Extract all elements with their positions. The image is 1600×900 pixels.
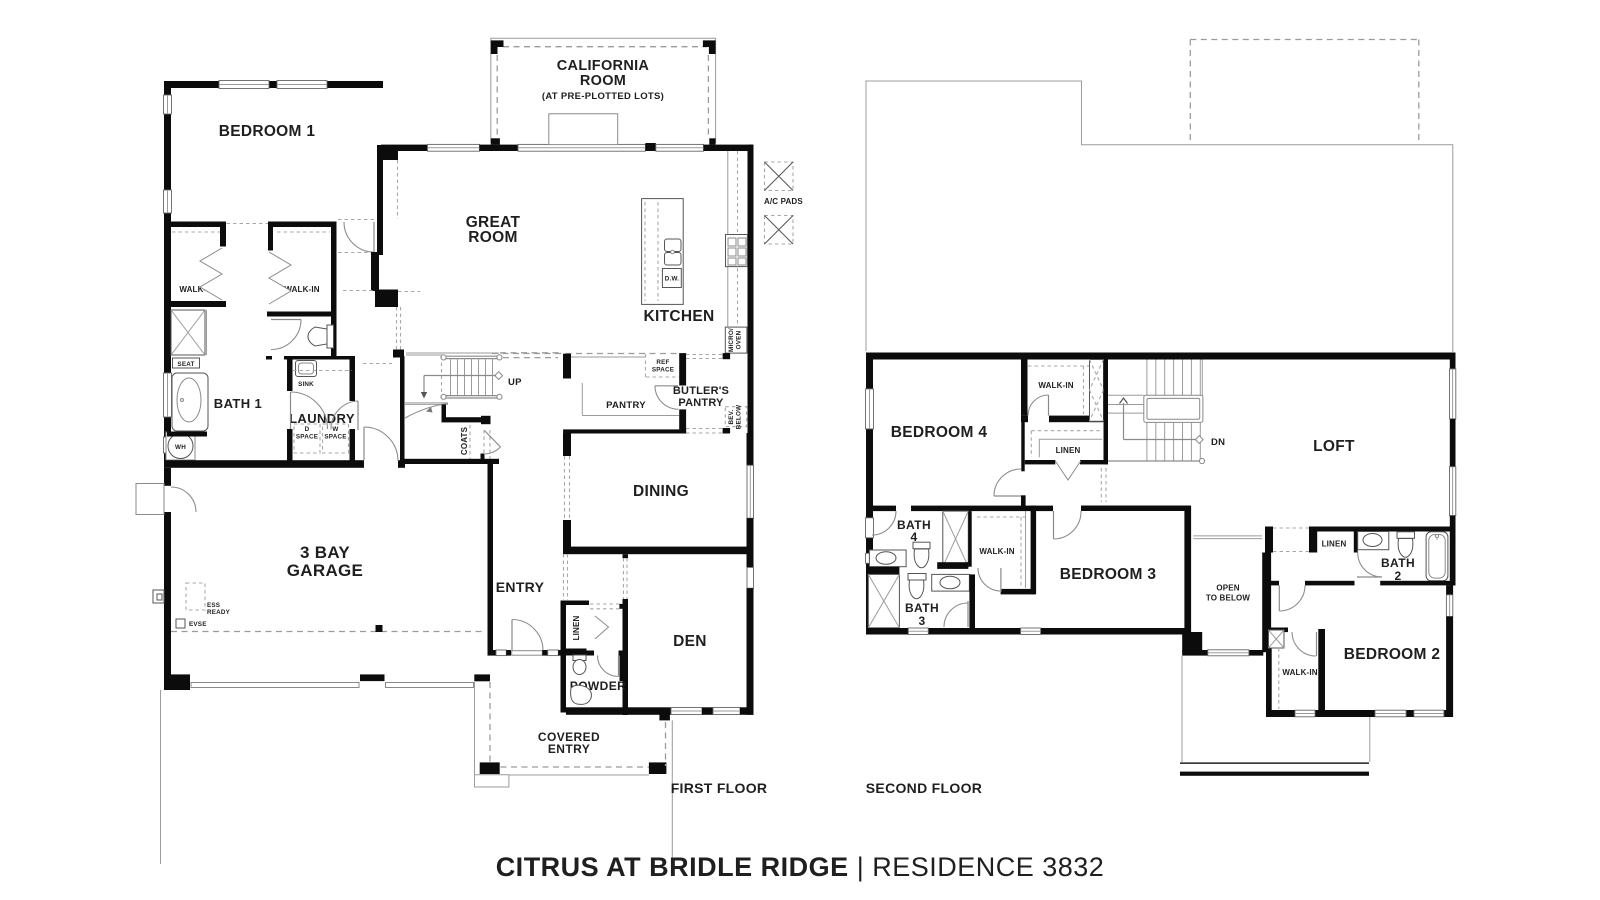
svg-text:REF: REF bbox=[656, 359, 669, 366]
svg-text:ENTRY: ENTRY bbox=[548, 742, 590, 756]
svg-text:BEDROOM 2: BEDROOM 2 bbox=[1344, 646, 1441, 663]
svg-text:PANTRY: PANTRY bbox=[678, 397, 724, 409]
svg-text:WALK-IN: WALK-IN bbox=[1038, 381, 1073, 390]
svg-text:EVSE: EVSE bbox=[189, 621, 207, 628]
svg-text:ESS: ESS bbox=[207, 602, 220, 609]
svg-text:LOFT: LOFT bbox=[1313, 438, 1355, 455]
svg-text:SEAT: SEAT bbox=[177, 361, 194, 368]
svg-text:BEDROOM 1: BEDROOM 1 bbox=[219, 123, 316, 140]
svg-text:CALIFORNIA: CALIFORNIA bbox=[557, 58, 650, 74]
svg-text:ENTRY: ENTRY bbox=[496, 579, 545, 595]
svg-text:DN: DN bbox=[1211, 437, 1225, 448]
svg-text:SECOND FLOOR: SECOND FLOOR bbox=[866, 780, 982, 796]
svg-text:UP: UP bbox=[508, 377, 522, 388]
svg-text:PANTRY: PANTRY bbox=[606, 400, 646, 411]
svg-text:WALK-IN: WALK-IN bbox=[284, 285, 319, 294]
svg-text:(AT PRE-PLOTTED LOTS): (AT PRE-PLOTTED LOTS) bbox=[542, 91, 664, 102]
svg-text:DINING: DINING bbox=[633, 483, 689, 500]
svg-text:LINEN: LINEN bbox=[1322, 540, 1347, 549]
svg-text:WALK-IN: WALK-IN bbox=[1282, 668, 1317, 677]
svg-text:LINEN: LINEN bbox=[1056, 446, 1081, 455]
svg-text:KITCHEN: KITCHEN bbox=[644, 308, 715, 325]
svg-text:BEDROOM 3: BEDROOM 3 bbox=[1060, 566, 1157, 583]
svg-text:COATS: COATS bbox=[460, 426, 469, 455]
svg-text:WALK-IN: WALK-IN bbox=[979, 547, 1014, 556]
svg-text:BATH: BATH bbox=[1381, 556, 1415, 570]
svg-text:WH: WH bbox=[175, 444, 186, 451]
svg-text:BEDROOM 4: BEDROOM 4 bbox=[891, 424, 988, 441]
svg-text:D.W.: D.W. bbox=[665, 276, 679, 283]
svg-text:LINEN: LINEN bbox=[572, 616, 581, 641]
svg-text:BEV.: BEV. bbox=[728, 409, 735, 424]
svg-text:OPEN: OPEN bbox=[1216, 584, 1239, 593]
svg-text:W: W bbox=[332, 426, 338, 433]
svg-text:SPACE: SPACE bbox=[324, 434, 346, 441]
svg-text:SPACE: SPACE bbox=[652, 367, 674, 374]
svg-text:BATH: BATH bbox=[905, 601, 939, 615]
svg-text:OVEN: OVEN bbox=[736, 330, 743, 349]
svg-text:CITRUS AT BRIDLE RIDGE | RESID: CITRUS AT BRIDLE RIDGE | RESIDENCE 3832 bbox=[496, 852, 1105, 882]
svg-text:FIRST FLOOR: FIRST FLOOR bbox=[671, 780, 768, 796]
svg-text:3: 3 bbox=[918, 614, 925, 628]
svg-text:BUTLER'S: BUTLER'S bbox=[673, 385, 729, 397]
svg-text:TO BELOW: TO BELOW bbox=[1206, 594, 1250, 603]
svg-text:BATH 1: BATH 1 bbox=[214, 396, 262, 411]
svg-text:ROOM: ROOM bbox=[580, 73, 626, 89]
svg-text:SINK: SINK bbox=[298, 381, 314, 388]
svg-text:A/C PADS: A/C PADS bbox=[764, 197, 803, 206]
svg-text:BELOW: BELOW bbox=[736, 405, 743, 429]
svg-text:MICRO/: MICRO/ bbox=[728, 328, 735, 352]
svg-text:GARAGE: GARAGE bbox=[287, 561, 363, 580]
svg-text:SPACE: SPACE bbox=[296, 434, 318, 441]
svg-text:DEN: DEN bbox=[673, 633, 707, 650]
svg-text:READY: READY bbox=[207, 609, 231, 616]
svg-text:ROOM: ROOM bbox=[468, 229, 517, 246]
svg-text:3 BAY: 3 BAY bbox=[300, 543, 350, 562]
svg-text:D: D bbox=[305, 426, 310, 433]
